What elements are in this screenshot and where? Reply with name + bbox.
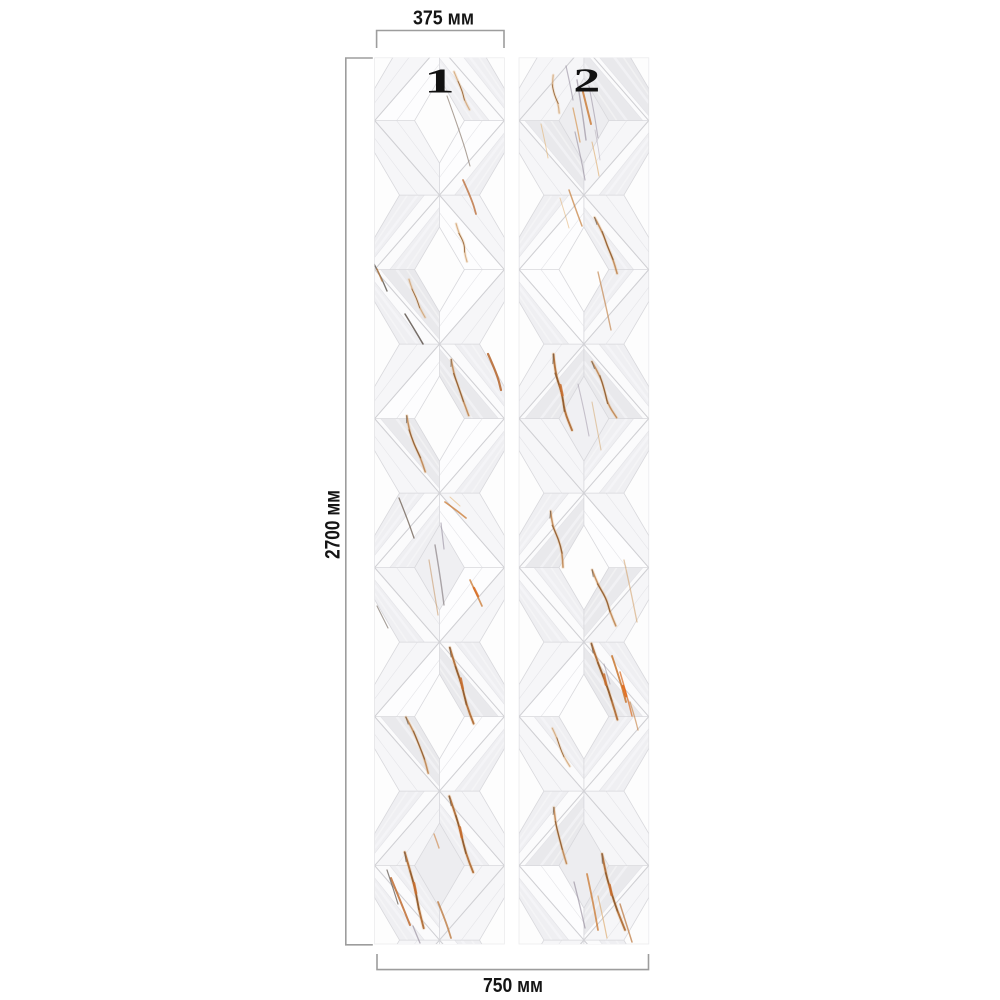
- svg-text:375 мм: 375 мм: [413, 8, 474, 30]
- svg-text:750 мм: 750 мм: [483, 975, 543, 997]
- svg-text:2: 2: [573, 61, 600, 99]
- svg-text:1: 1: [424, 62, 455, 101]
- svg-text:2700 мм: 2700 мм: [322, 490, 345, 559]
